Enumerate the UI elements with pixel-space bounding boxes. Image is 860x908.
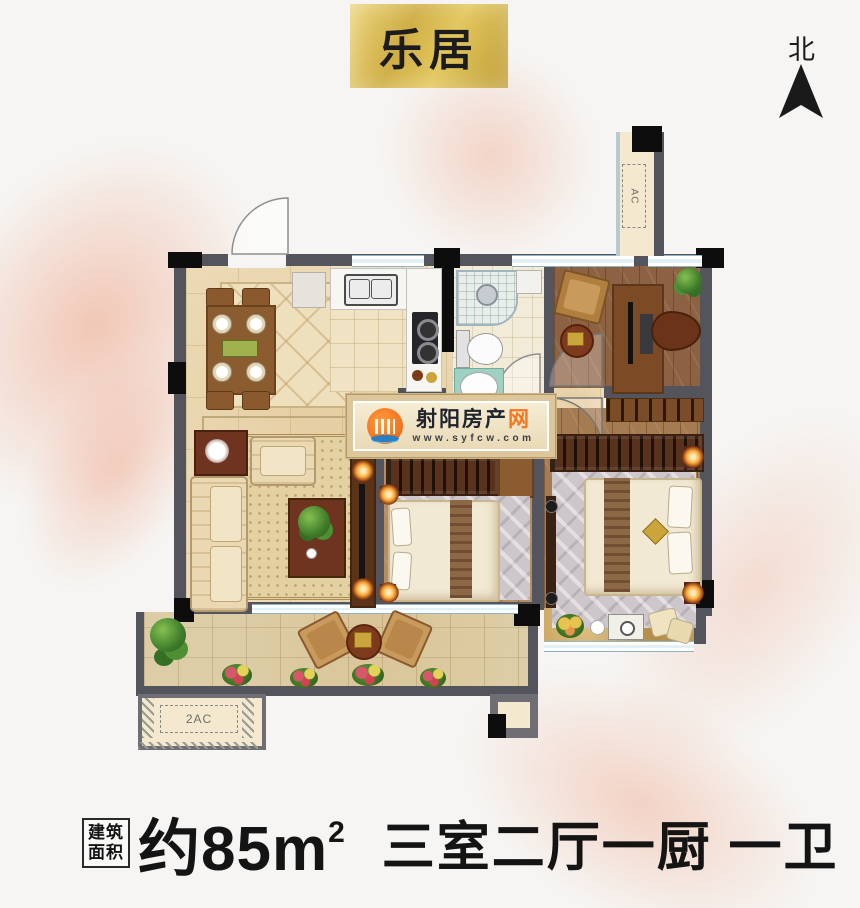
logo-url: www.syfcw.com (412, 434, 534, 444)
toilet-bowl (467, 333, 503, 365)
speaker (545, 592, 558, 605)
dining-plate (246, 362, 266, 382)
desk-monitor (628, 302, 633, 364)
speaker (545, 500, 558, 513)
master-tv-console (546, 496, 556, 608)
balcony-flowers (222, 664, 252, 686)
master-pillow (667, 485, 693, 528)
burner (417, 342, 439, 364)
sink-basin (349, 279, 370, 299)
logo-name-accent: 网 (508, 408, 531, 431)
chair-cushion (384, 618, 424, 659)
area-label-box: 建筑 面积 (82, 818, 130, 869)
logo-name-main: 射阳房产 (416, 408, 508, 431)
sink-basin (371, 279, 392, 299)
bedroom2-cabinet (498, 456, 534, 498)
floorplan-poster: 乐居 北 (0, 0, 860, 908)
living-wall-lamp (352, 578, 374, 600)
floor-plan: AC 2AC (0, 0, 860, 908)
logo-buildings-icon (375, 419, 395, 434)
stove (412, 312, 438, 364)
logo-plaque: 射阳房产网 www.syfcw.com (346, 394, 556, 458)
area-number: 约85m (138, 815, 328, 884)
bedside-lamp (682, 582, 704, 604)
balcony-flowers (352, 664, 384, 686)
armchair-cushion (260, 446, 306, 476)
bay-plate (590, 620, 605, 635)
logo-sun-icon (367, 408, 403, 444)
area-value: 约85m2 (138, 798, 346, 888)
condiment-jar (426, 372, 437, 383)
condiment-jar (412, 370, 423, 381)
bedroom2-wardrobe (386, 456, 500, 496)
tv-screen (359, 484, 365, 580)
sofa-cushion (210, 486, 242, 542)
coffee-cup (306, 548, 317, 559)
bedside-lamp (682, 446, 704, 468)
entry-cabinet (292, 272, 326, 308)
logo-text: 射阳房产网 www.syfcw.com (412, 409, 534, 444)
master-bed-runner (604, 478, 630, 592)
balcony-tray (354, 632, 372, 648)
tray-cup (620, 621, 635, 636)
table-clock (203, 437, 231, 465)
master-wardrobe (550, 434, 704, 472)
sofa-cushion (210, 546, 242, 602)
area-superscript: 2 (328, 816, 346, 849)
bedside-lamp (378, 582, 399, 603)
bay-flowers (556, 614, 584, 638)
living-wall-lamp (352, 460, 374, 482)
bedside-lamp (378, 484, 399, 505)
logo-wave-icon (371, 435, 399, 442)
dining-plate (212, 362, 232, 382)
bath-shelf (516, 270, 542, 294)
area-label-line2: 面积 (88, 843, 124, 863)
balcony-plant (150, 618, 186, 652)
entrance-door (232, 198, 288, 254)
armchair-cushion (563, 279, 601, 316)
balcony-flowers (420, 668, 446, 688)
bedroom2-pillow (391, 507, 413, 546)
logo-plaque-inner: 射阳房产网 www.syfcw.com (353, 401, 549, 451)
living-sofa (190, 476, 248, 612)
area-info: 建筑 面积 约85m2 三室二厅一厨 一卫 (82, 798, 839, 888)
living-armchair (250, 436, 316, 486)
balcony-flowers (290, 668, 318, 688)
master-pillow (667, 531, 693, 574)
layout-text: 三室二厅一厨 一卫 (382, 805, 839, 881)
dining-chair (206, 391, 234, 410)
logo-name: 射阳房产网 (416, 409, 531, 430)
study-book (567, 332, 584, 346)
bedroom2-bed-runner (450, 500, 472, 598)
shower-head (476, 284, 498, 306)
table-runner (222, 340, 258, 357)
bay-tray (608, 614, 644, 640)
dining-plate (246, 314, 266, 334)
burner (417, 319, 439, 341)
dining-plate (212, 314, 232, 334)
area-label-line1: 建筑 (88, 823, 124, 843)
master-bookshelf (606, 398, 704, 422)
dining-chair (242, 391, 270, 410)
chair-cushion (306, 619, 348, 661)
kitchen-sink (344, 274, 398, 306)
study-plant (676, 268, 702, 294)
coffee-table-plant (298, 506, 330, 538)
